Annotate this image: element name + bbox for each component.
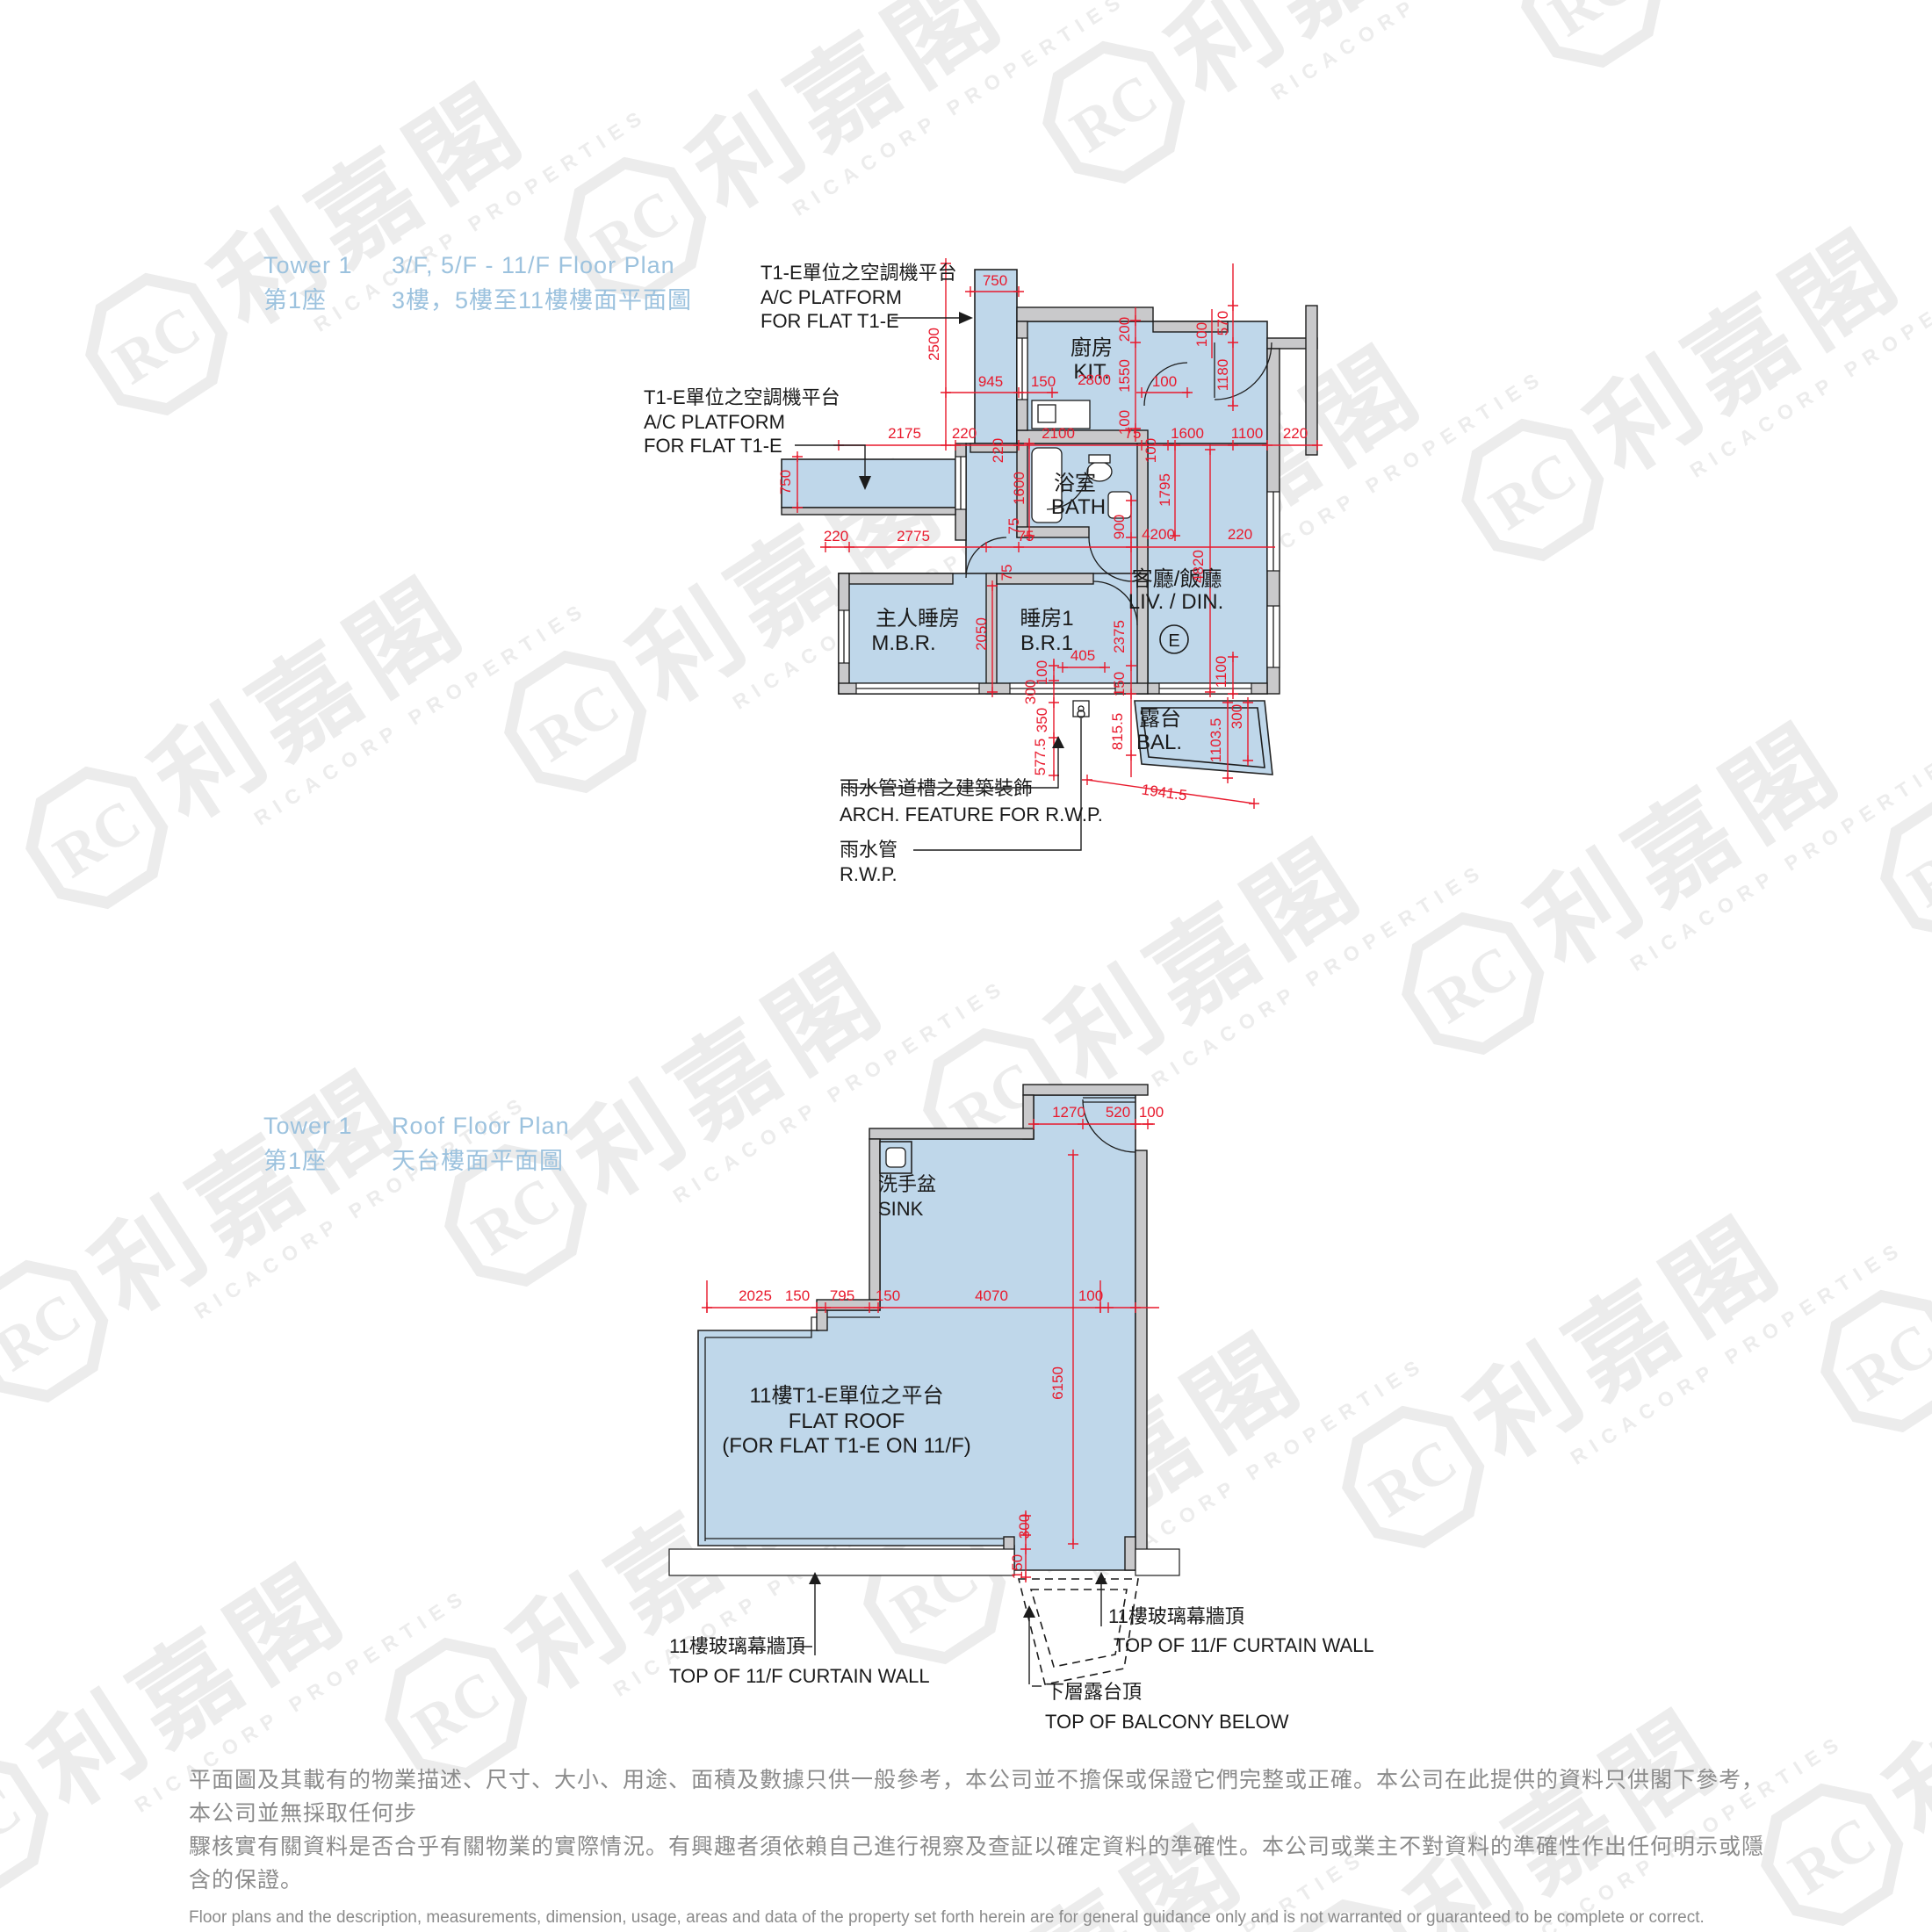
curtain-right-label-zh: 11樓玻璃幕牆頂 — [1108, 1605, 1244, 1627]
arch-feature-label-zh: 雨水管道槽之建築裝飾 — [840, 777, 1033, 799]
dimension-label: 2375 — [1111, 620, 1128, 653]
basin — [1108, 492, 1131, 518]
dimension-label: 2050 — [973, 617, 990, 651]
dimension-label: 2500 — [926, 328, 942, 361]
dimension-label: 100 — [1143, 438, 1159, 463]
dimension-label: 220 — [1283, 425, 1308, 442]
dimension-label: 1795 — [1157, 473, 1173, 507]
dimension-label: 100 — [1152, 373, 1177, 390]
ac-top-label-en2: FOR FLAT T1-E — [761, 310, 899, 332]
dimension-label: 2100 — [1042, 425, 1075, 442]
dimension-label: 75 — [998, 565, 1015, 581]
balcony-label-en: BAL. — [1136, 731, 1182, 754]
balcony-label-zh: 露台 — [1139, 707, 1181, 731]
ac-left-label-zh: T1-E單位之空調機平台 — [644, 386, 840, 408]
sink-label-zh: 洗手盆 — [878, 1173, 936, 1195]
dimension-label: 405 — [1071, 647, 1095, 664]
plan1-drawing: T1-E單位之空調機平台 A/C PLATFORM FOR FLAT T1-E … — [644, 258, 1323, 885]
dimension-label: 1600 — [1011, 472, 1027, 505]
disclaimer: 平面圖及其載有的物業描述、尺寸、大小、用途、面積及數據只供一般參考，本公司並不擔… — [189, 1763, 1770, 1932]
dimension-label: 795 — [830, 1287, 854, 1304]
dimension-tick — [702, 1302, 712, 1313]
dimension-label: 100 — [1139, 1104, 1164, 1121]
flat-letter: E — [1168, 631, 1179, 651]
sink-label-en: SINK — [878, 1198, 924, 1220]
dimension-label: 1100 — [1231, 425, 1264, 442]
dimension-label: 2025 — [739, 1287, 772, 1304]
dimension-label: 300 — [1229, 704, 1245, 729]
dimension-label: 220 — [1228, 526, 1252, 543]
dimension-label: 1180 — [1215, 359, 1231, 392]
dimension-label: 150 — [1031, 373, 1056, 390]
dimension-label: 150 — [1111, 672, 1128, 696]
dimension-label: 150 — [785, 1287, 810, 1304]
dimension-tick — [1249, 798, 1259, 809]
dimension-tick — [1049, 770, 1059, 781]
flat-roof-area — [698, 1095, 1135, 1570]
dimension-tick — [1049, 697, 1059, 708]
dimension-label: 1550 — [1116, 359, 1133, 393]
plan2-drawing: 洗手盆 SINK 11樓T1-E單位之平台 FLAT ROOF (FOR FLA… — [669, 1085, 1374, 1733]
dimension-label: 200 — [1116, 317, 1133, 342]
dimension-label: 945 — [978, 373, 1003, 390]
dimension-label: 1600 — [1171, 425, 1204, 442]
bath-label-zh: 浴室 — [1054, 472, 1096, 495]
dimension-label: 75 — [1018, 528, 1034, 544]
dimension-label: 220 — [824, 528, 848, 544]
ac-top-label-en1: A/C PLATFORM — [761, 286, 902, 308]
dimension-tick — [1082, 775, 1092, 785]
living-label-en: LIV. / DIN. — [1128, 590, 1224, 614]
curtain-left-label-zh: 11樓玻璃幕牆頂 — [669, 1635, 805, 1657]
disclaimer-zh-line2: 驟核實有關資料是否合乎有關物業的實際情況。有興趣者須依賴自己進行視察及查証以確定… — [189, 1830, 1770, 1897]
dimension-label: 300 — [1022, 680, 1039, 704]
dimension-tick — [941, 440, 951, 451]
mbr-label-zh: 主人睡房 — [876, 607, 960, 631]
curtain-wall-bar-left — [669, 1549, 1014, 1575]
kitchen-label-zh: 廚房 — [1071, 336, 1113, 360]
disclaimer-zh-line1: 平面圖及其載有的物業描述、尺寸、大小、用途、面積及數據只供一般參考，本公司並不擔… — [189, 1763, 1770, 1830]
dimension-label: 4070 — [975, 1287, 1008, 1304]
dimension-label: 6150 — [1049, 1366, 1066, 1400]
dimension-label: 4820 — [1190, 550, 1207, 583]
balcony-below-label-en: TOP OF BALCONY BELOW — [1045, 1711, 1289, 1733]
dimension-tick — [965, 286, 976, 297]
dimension-label: 150 — [876, 1287, 900, 1304]
dimension-label: 4200 — [1142, 526, 1175, 543]
br1-label-en: B.R.1 — [1020, 631, 1073, 655]
ac-left-label-en1: A/C PLATFORM — [644, 411, 785, 433]
dimension-label: 900 — [1111, 515, 1128, 539]
flatroof-label-en1: FLAT ROOF — [789, 1409, 905, 1433]
br1-label-zh: 睡房1 — [1020, 607, 1073, 631]
living-label-zh: 客廳/飯廳 — [1132, 567, 1222, 591]
dimension-label: 300 — [1016, 1514, 1033, 1539]
floorplan-canvas: T1-E單位之空調機平台 A/C PLATFORM FOR FLAT T1-E … — [0, 0, 1932, 1932]
rwp-label-zh: 雨水管 — [840, 839, 898, 861]
rwp-label-en: R.W.P. — [840, 863, 898, 885]
dimension-label: 1100 — [1213, 656, 1229, 688]
dimension-label: 750 — [983, 272, 1007, 289]
flatroof-label-zh: 11樓T1-E單位之平台 — [750, 1384, 944, 1408]
curtain-right-label-en: TOP OF 11/F CURTAIN WALL — [1114, 1634, 1374, 1656]
dimension-label: 75 — [1125, 425, 1142, 442]
dimension-tick — [1222, 773, 1233, 783]
flatroof-label-en2: (FOR FLAT T1-E ON 11/F) — [722, 1434, 971, 1458]
dimension-label: 2775 — [897, 528, 930, 544]
dimension-label: 570 — [1215, 311, 1231, 335]
floorplan-page: RC 利嘉閣 RICACORP PROPERTIES RC 利嘉閣 RICACO… — [0, 0, 1932, 1932]
ac-left-label-en2: FOR FLAT T1-E — [644, 435, 782, 457]
ac-top-label-zh: T1-E單位之空調機平台 — [761, 262, 957, 284]
dimension-tick — [941, 387, 951, 398]
dimension-label: 1270 — [1052, 1104, 1085, 1121]
dimension-label: 2800 — [1078, 371, 1111, 388]
dimension-label: 520 — [1106, 1104, 1130, 1121]
curtain-wall-bar-right — [1135, 1549, 1179, 1575]
kitchen-sink — [1038, 405, 1056, 422]
ac-platform-left-area — [782, 459, 955, 508]
dimension-label: 750 — [777, 470, 794, 494]
dimension-label: 100 — [1193, 322, 1210, 347]
dimension-label: 1103.5 — [1207, 718, 1224, 763]
disclaimer-en-line1: Floor plans and the description, measure… — [189, 1906, 1770, 1930]
bath-label-en: BATH — [1051, 495, 1106, 519]
dimension-label: 100 — [1078, 1287, 1103, 1304]
dimension-label: 220 — [952, 425, 977, 442]
arch-feature-label-en: ARCH. FEATURE FOR R.W.P. — [840, 804, 1103, 825]
dimension-label: 577.5 — [1032, 739, 1049, 776]
ac-platform-top-area — [975, 270, 1017, 445]
dimension-label: 350 — [1034, 708, 1050, 732]
curtain-left-label-en: TOP OF 11/F CURTAIN WALL — [669, 1665, 930, 1687]
dimension-label: 2175 — [888, 425, 921, 442]
dimension-label: 1941.5 — [1141, 782, 1188, 804]
toilet-cistern — [1089, 455, 1110, 463]
mbr-label-en: M.B.R. — [871, 631, 935, 655]
sink-bowl — [886, 1148, 905, 1167]
dimension-tick — [1228, 300, 1238, 311]
dimension-tick — [1126, 750, 1136, 761]
dimension-label: 150 — [1009, 1554, 1026, 1579]
balcony-below-label-zh: 下層露台頂 — [1045, 1681, 1142, 1703]
dimension-label: 220 — [990, 438, 1006, 463]
dimension-label: 815.5 — [1109, 713, 1126, 751]
